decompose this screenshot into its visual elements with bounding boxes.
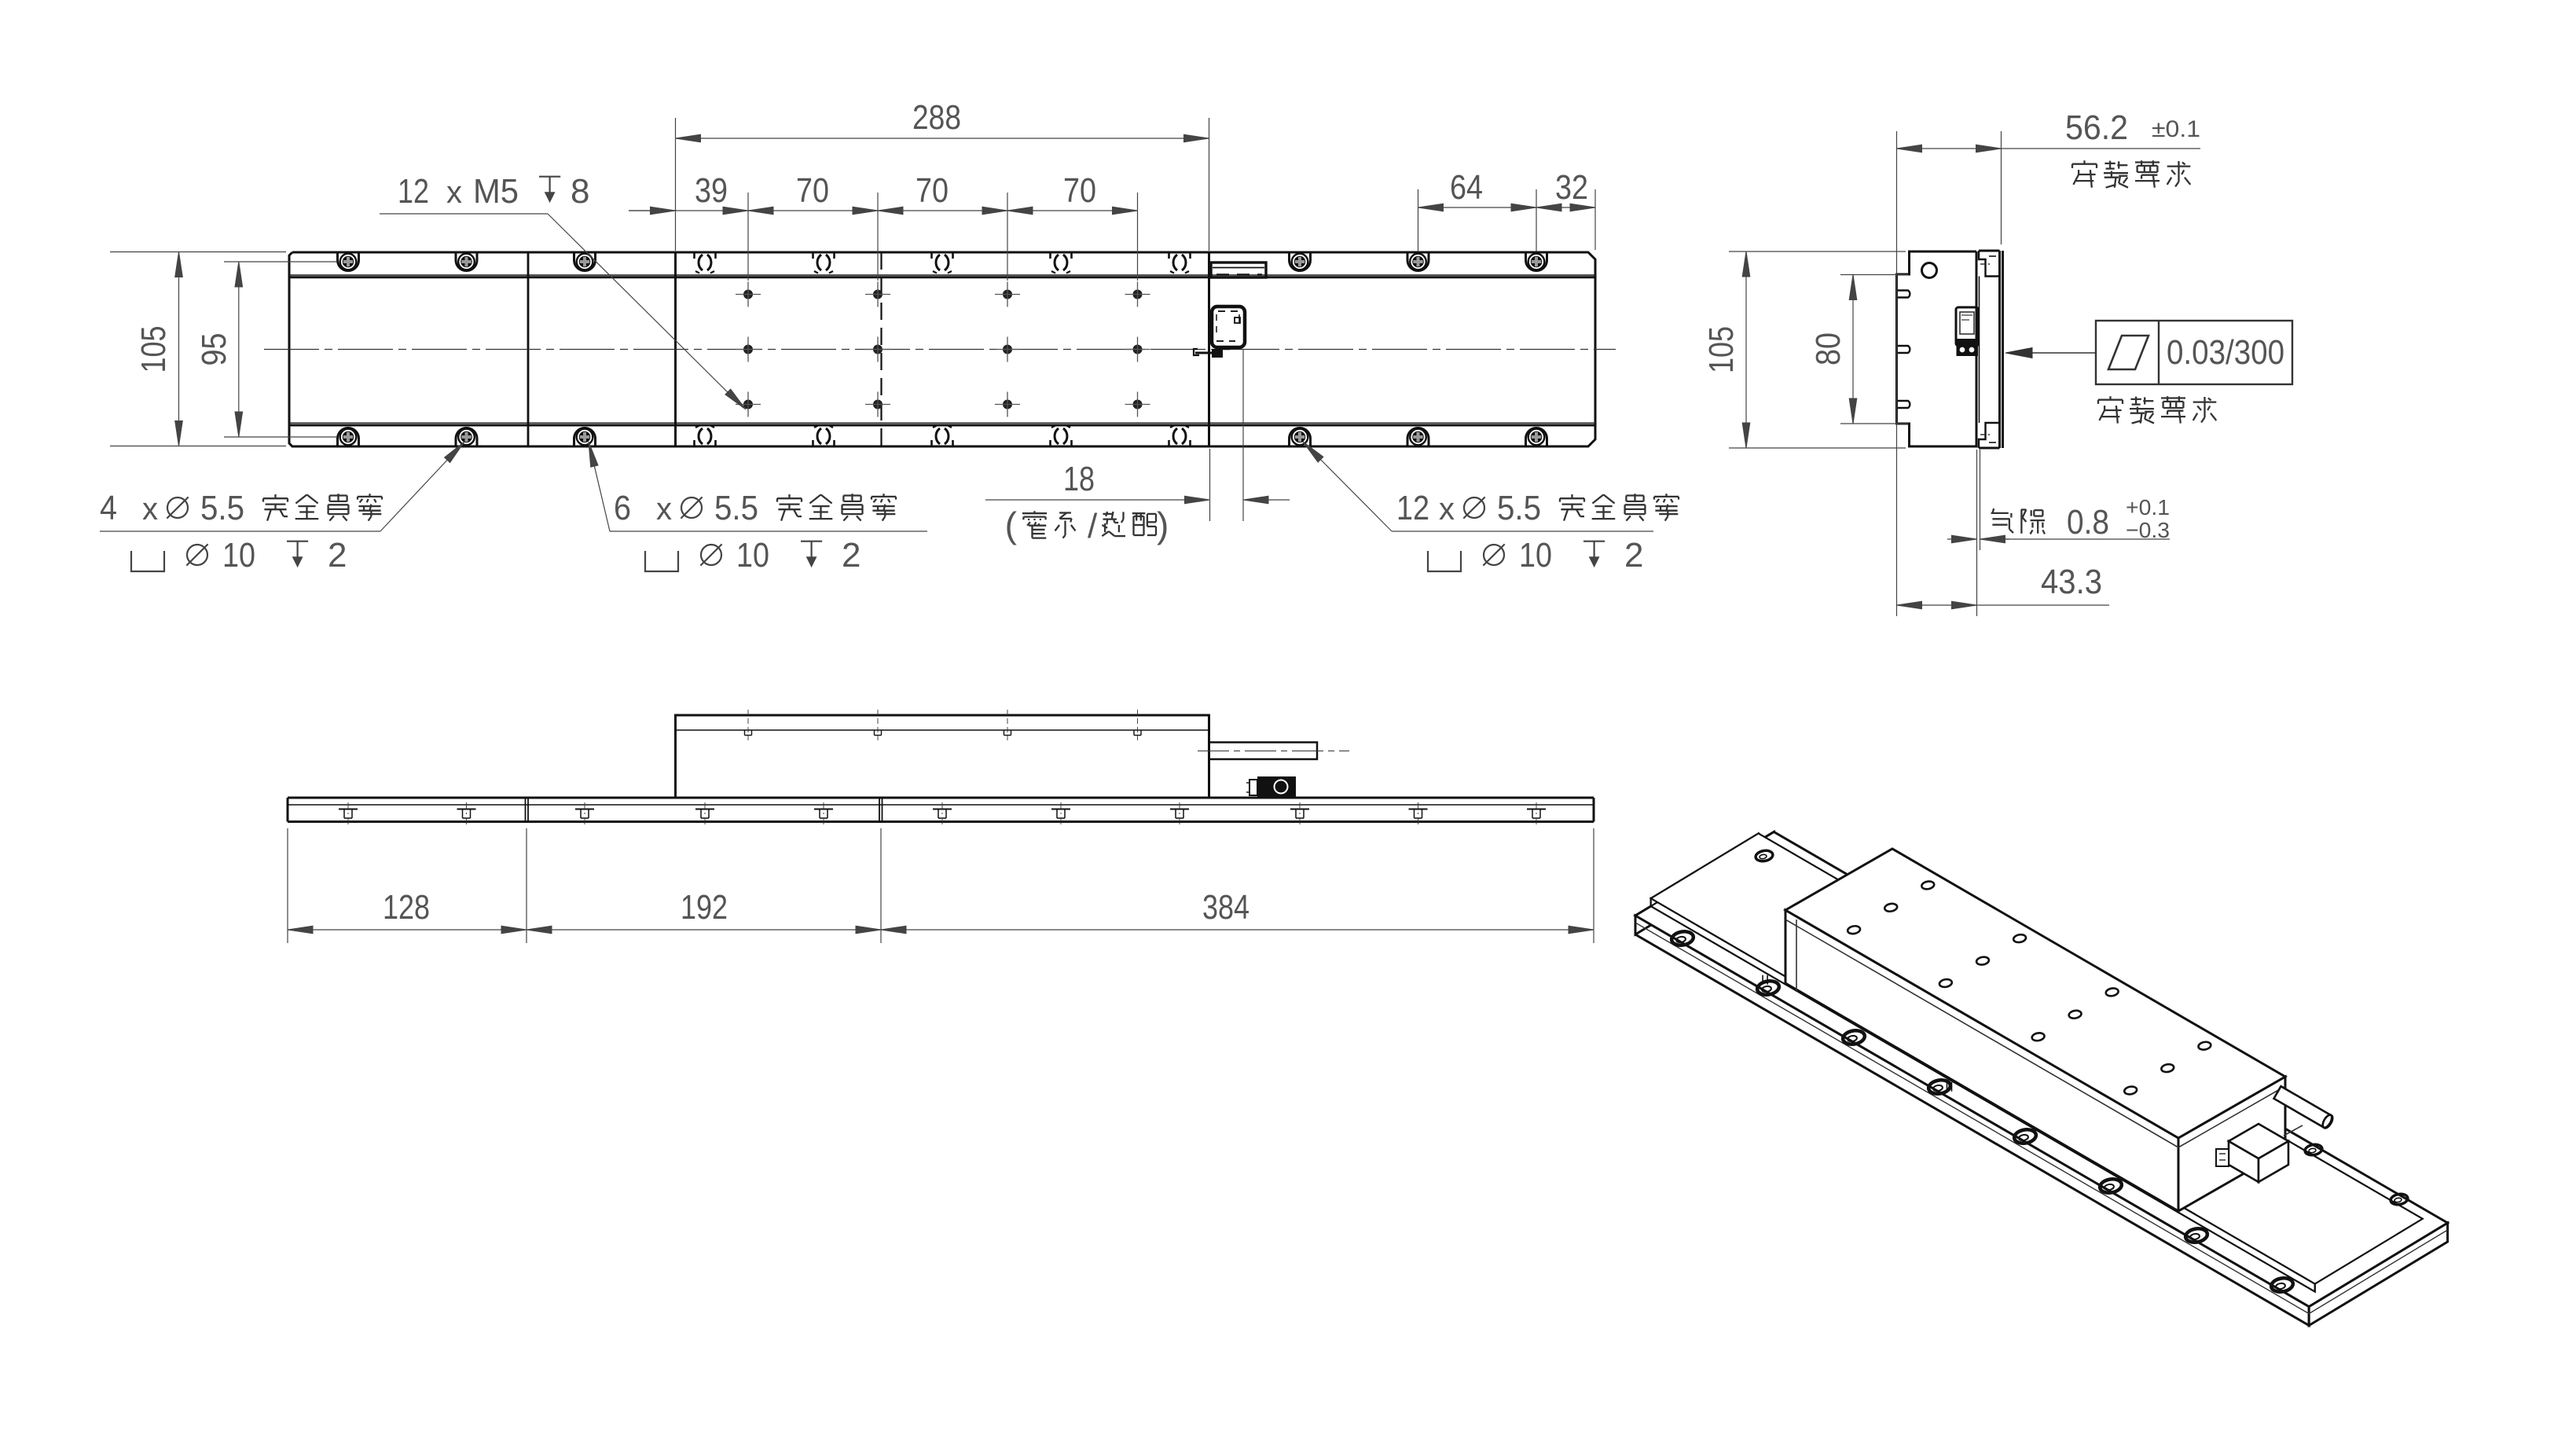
svg-text:±0.1: ±0.1 [2152,116,2200,142]
svg-text:6: 6 [614,489,631,527]
svg-text:288: 288 [912,98,961,137]
svg-text:18: 18 [1063,460,1095,498]
svg-text:64: 64 [1450,168,1483,207]
svg-text:39: 39 [695,171,728,210]
svg-text:12: 12 [1396,489,1429,527]
svg-text:−0.3: −0.3 [2126,518,2170,542]
svg-text:M5: M5 [473,172,519,211]
svg-text:2: 2 [328,536,347,574]
svg-text:4: 4 [100,489,117,527]
svg-text:95: 95 [195,333,233,366]
svg-text:10: 10 [222,536,255,574]
svg-text:5.5: 5.5 [200,489,244,527]
svg-text:2: 2 [842,536,861,574]
svg-text:x: x [142,492,158,527]
svg-text:10: 10 [736,536,769,574]
svg-text:128: 128 [383,888,430,927]
svg-text:x: x [446,175,462,210]
svg-text:8: 8 [571,172,589,211]
svg-text:70: 70 [796,171,829,210]
svg-text:0.8: 0.8 [2067,503,2109,541]
svg-text:2: 2 [1624,536,1643,574]
svg-text:70: 70 [916,171,949,210]
svg-text:192: 192 [681,888,728,927]
svg-text:10: 10 [1519,536,1552,574]
svg-text:/: / [1088,507,1098,545]
svg-text:12: 12 [398,172,429,211]
svg-text:105: 105 [134,326,173,373]
svg-text:x: x [1439,492,1455,527]
svg-text:5.5: 5.5 [714,489,758,527]
svg-text:0.03/300: 0.03/300 [2167,333,2284,372]
svg-text:): ) [1157,505,1169,545]
svg-text:80: 80 [1809,332,1848,365]
svg-text:x: x [656,492,672,527]
svg-text:70: 70 [1063,171,1096,210]
svg-text:+0.1: +0.1 [2126,495,2170,519]
svg-text:384: 384 [1202,888,1249,927]
svg-text:43.3: 43.3 [2041,563,2102,601]
svg-text:56.2: 56.2 [2065,108,2128,147]
svg-text:105: 105 [1702,326,1741,373]
svg-text:32: 32 [1555,168,1588,207]
svg-text:(: ( [1005,505,1018,545]
svg-text:5.5: 5.5 [1497,489,1541,527]
